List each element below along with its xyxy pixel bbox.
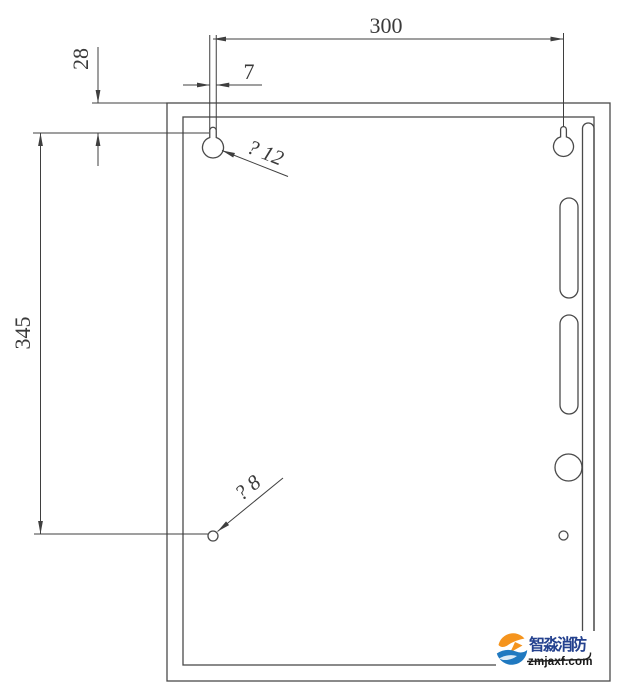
panel-inner-outline [183,117,594,665]
technical-drawing-canvas: 300 7 28 345 ? 12 ? 8 [0,0,625,696]
leader-dia12-label: ? 12 [244,135,287,171]
cable-slot-upper [560,198,578,298]
panel-right-bend-strip [583,123,595,658]
dimension-345-value: 345 [10,317,35,350]
mounting-dimension-diagram: 300 7 28 345 ? 12 ? 8 [0,0,625,696]
watermark: 智淼消防 zmjaxf.com [496,631,596,668]
panel-outer-outline [167,103,610,681]
dimension-7-value: 7 [244,59,255,84]
large-round-hole [555,454,582,481]
dimension-7: 7 [183,59,262,85]
leader-dia12: ? 12 [222,135,288,177]
dimension-28-value: 28 [68,48,93,70]
cable-slot-lower [560,315,578,414]
dimension-300: 300 [213,13,564,39]
ext-line-slot-edges [210,35,217,130]
dimension-annotations: 300 7 28 345 ? 12 ? 8 [10,13,564,534]
watermark-brand-text: 智淼消防 [529,635,587,654]
keyhole-slot-left [202,127,223,158]
mounting-hole-dia8 [208,531,218,541]
dimension-345: 345 [10,133,41,534]
dimension-28: 28 [68,47,98,166]
small-mounting-hole-right [559,531,568,540]
leader-dia8: ? 8 [218,470,284,532]
cabinet-panel [167,103,610,681]
keyhole-slot-right [554,127,574,157]
watermark-url-text: zmjaxf.com [528,656,593,668]
leader-dia8-label: ? 8 [230,470,266,505]
dimension-300-value: 300 [370,13,403,38]
